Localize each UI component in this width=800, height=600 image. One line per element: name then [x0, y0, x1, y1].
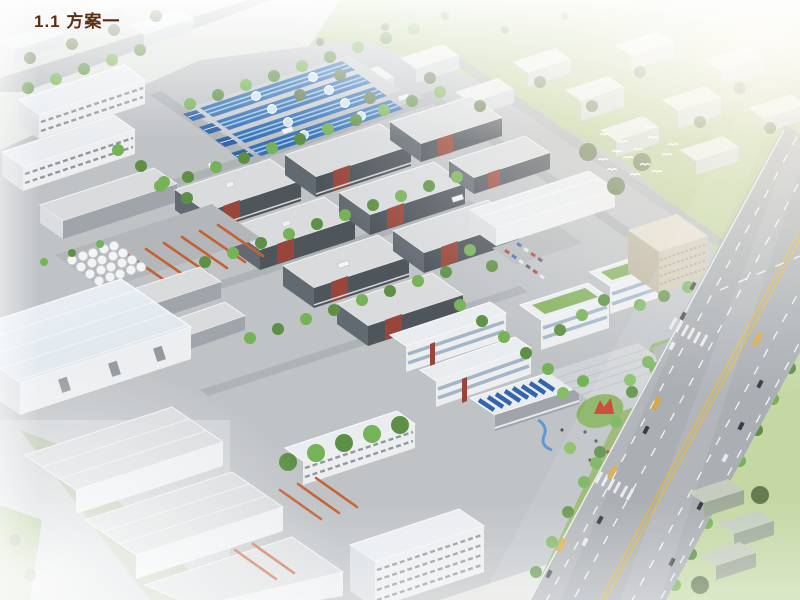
- aerial-rendering: [0, 0, 800, 600]
- rendering-canvas: 1.1 方案一: [0, 0, 800, 600]
- plan-title: 1.1 方案一: [34, 7, 120, 32]
- haze-overlays: [0, 0, 800, 600]
